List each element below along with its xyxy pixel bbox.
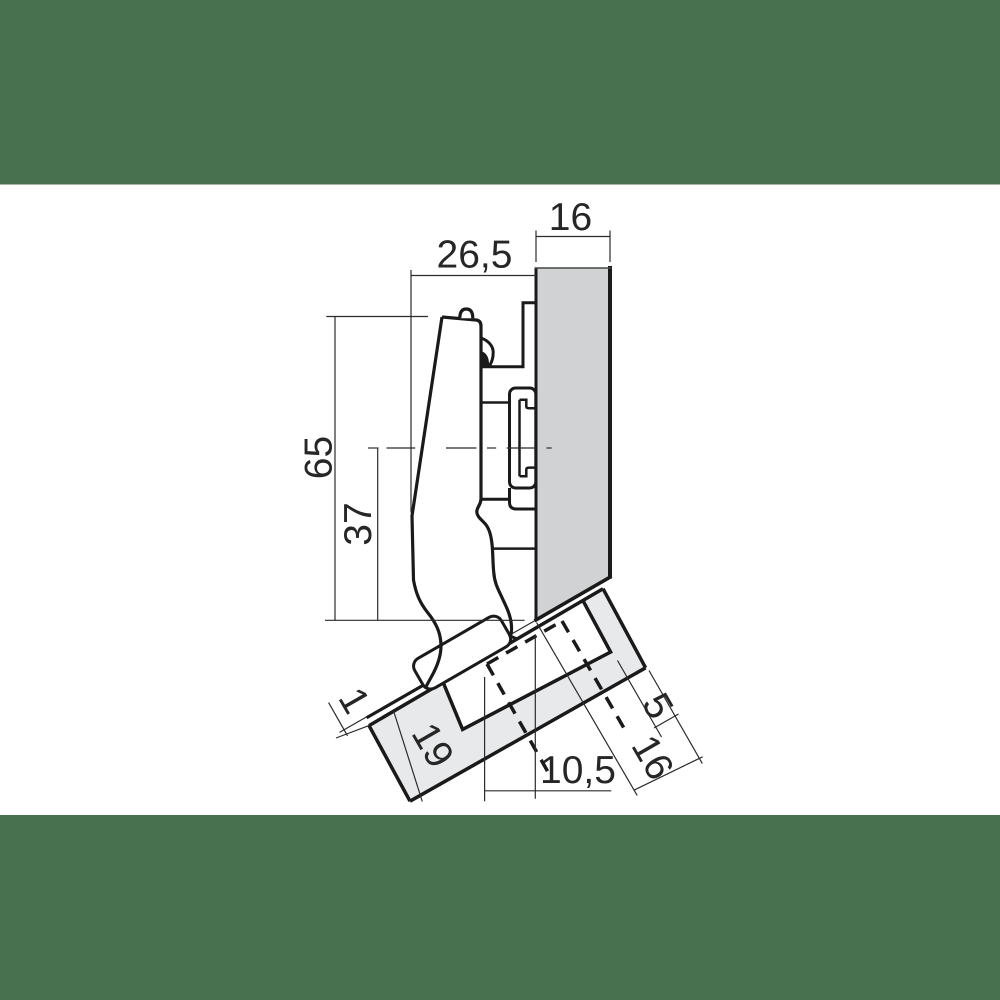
svg-text:26,5: 26,5 xyxy=(437,234,513,277)
svg-text:10,5: 10,5 xyxy=(540,749,616,792)
svg-text:65: 65 xyxy=(298,436,341,479)
svg-text:16: 16 xyxy=(549,196,592,239)
svg-text:37: 37 xyxy=(337,502,380,545)
